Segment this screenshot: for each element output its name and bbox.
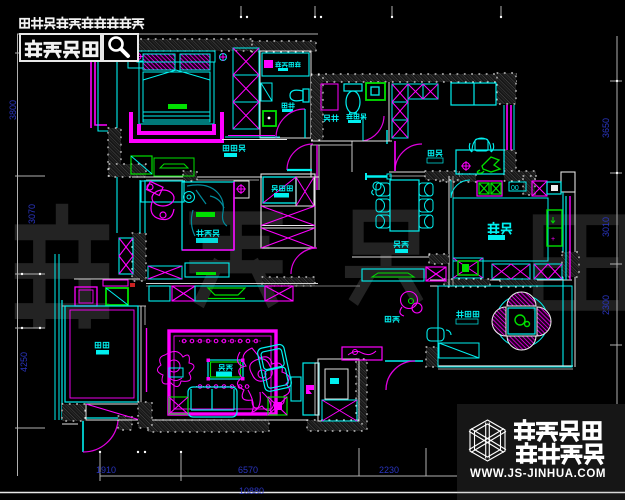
- svg-text:10880: 10880: [239, 486, 264, 496]
- svg-text:4250: 4250: [19, 352, 29, 372]
- svg-text:3650: 3650: [601, 118, 611, 138]
- svg-text:3010: 3010: [601, 217, 611, 237]
- svg-text:2300: 2300: [601, 295, 611, 315]
- svg-text:6570: 6570: [238, 465, 258, 475]
- svg-text:WWW.JS-JINHUA.COM: WWW.JS-JINHUA.COM: [470, 468, 606, 480]
- svg-text:2230: 2230: [379, 465, 399, 475]
- svg-text:3070: 3070: [27, 204, 37, 224]
- svg-text:+: +: [551, 236, 555, 243]
- svg-text:1910: 1910: [96, 465, 116, 475]
- svg-text:00: 00: [511, 185, 519, 192]
- svg-text:3800: 3800: [8, 100, 18, 120]
